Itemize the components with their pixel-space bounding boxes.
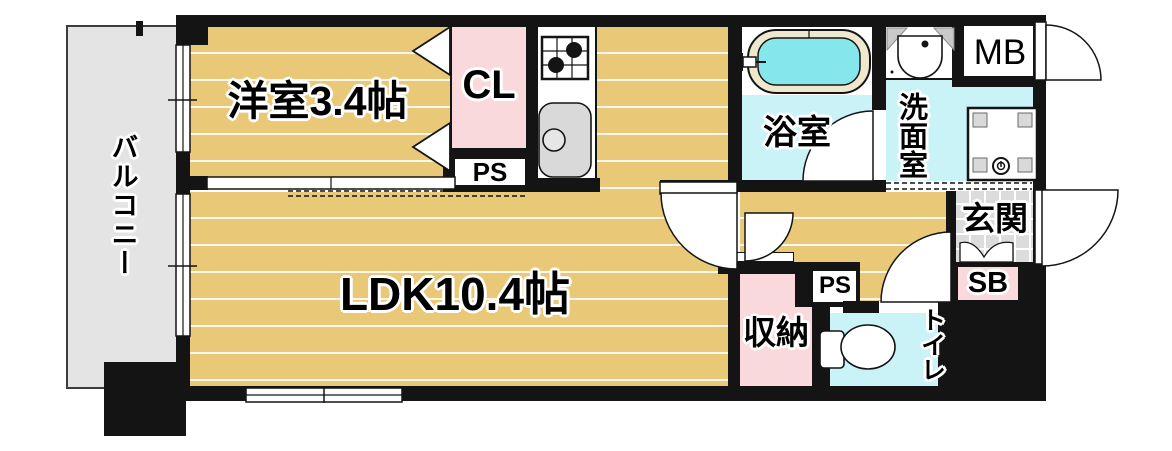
- window-icon: [246, 386, 402, 403]
- washer-pan-icon: [968, 108, 1037, 180]
- label-storage: 収納: [742, 312, 810, 352]
- label-shoe-box: SB: [960, 268, 1016, 298]
- label-ps-upper: PS: [455, 158, 525, 186]
- gas-stove-icon: [542, 37, 588, 79]
- door-swing-icon: [660, 22, 1118, 302]
- label-entrance: 玄関: [958, 199, 1032, 237]
- label-ldk: LDK10.4帖: [300, 266, 610, 322]
- bathtub-icon: [748, 30, 870, 93]
- toilet-icon: [820, 325, 895, 369]
- vanity-sink-icon: [887, 28, 954, 78]
- label-balcony: バルコニー: [96, 130, 148, 280]
- label-meter-box: MB: [966, 32, 1034, 72]
- label-western-room: 洋室3.4帖: [200, 75, 435, 127]
- label-bath: 浴室: [756, 112, 838, 154]
- kitchen-sink-icon: [539, 103, 591, 177]
- label-toilet: トイレ: [915, 303, 947, 385]
- label-closet: CL: [458, 62, 520, 108]
- label-washroom: 洗面室: [892, 82, 928, 188]
- entrance-step-icon: [960, 242, 1013, 262]
- label-ps-lower: PS: [816, 272, 854, 300]
- floor-plan: バルコニー 洋室3.4帖 CL PS LDK10.4帖 浴室 洗面室 MB 玄関…: [0, 0, 1172, 451]
